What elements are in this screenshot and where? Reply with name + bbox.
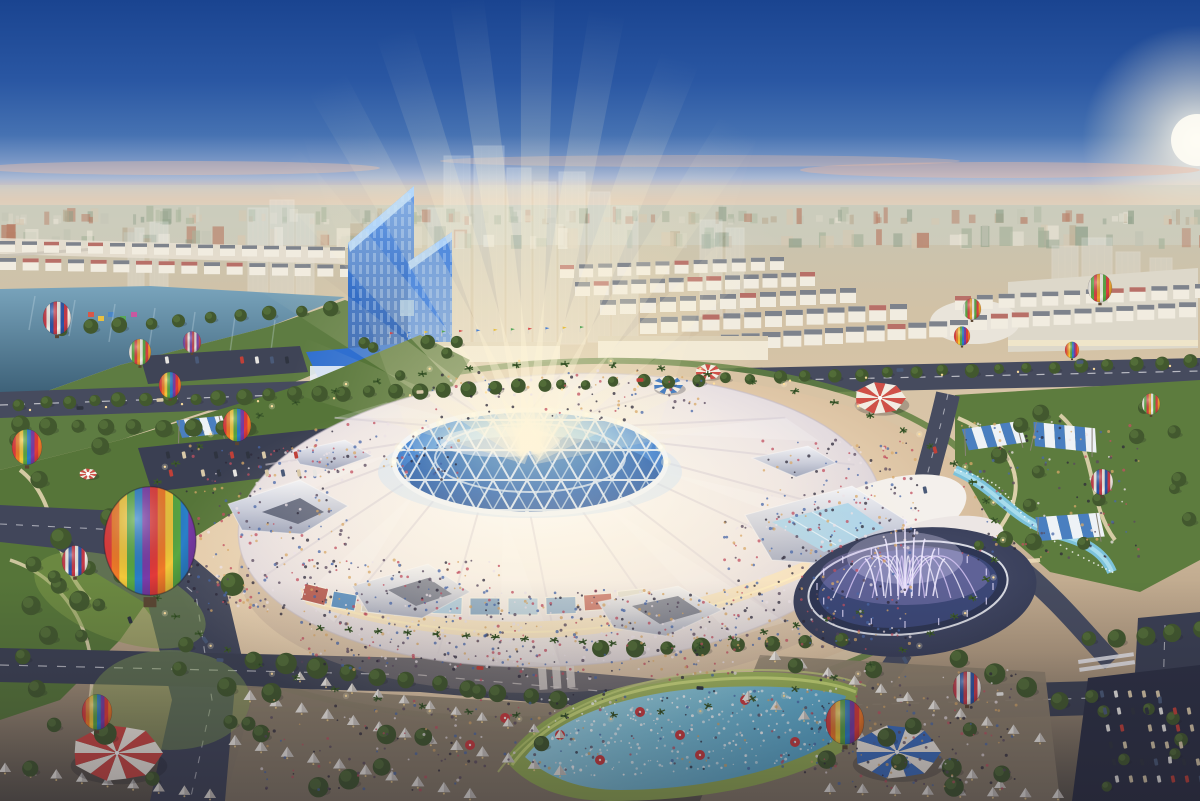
- person-dot: [1074, 505, 1077, 508]
- person-dot: [1033, 436, 1036, 439]
- person-dot: [495, 395, 498, 398]
- streetlight: [345, 383, 347, 385]
- person-dot: [912, 502, 914, 504]
- person-dot: [406, 576, 409, 579]
- tree-highlight: [937, 365, 943, 371]
- person-dot: [270, 453, 272, 455]
- person-dot: [398, 564, 401, 567]
- person-dot: [596, 400, 598, 402]
- person-dot: [776, 518, 778, 520]
- skyline-building: [1128, 211, 1134, 225]
- shophouse-roof: [1137, 305, 1154, 310]
- tree-highlight: [389, 385, 397, 393]
- shophouse-roof: [1173, 285, 1189, 289]
- person-dot: [219, 505, 221, 507]
- person-dot: [1047, 469, 1049, 471]
- person-dot: [973, 422, 976, 425]
- balloon-basket: [73, 577, 77, 580]
- person-dot: [196, 563, 199, 566]
- person-dot: [916, 484, 918, 486]
- person-dot: [225, 462, 227, 464]
- tree-highlight: [489, 382, 497, 390]
- person-dot: [198, 523, 200, 525]
- person-dot: [410, 460, 412, 462]
- person-dot: [222, 513, 225, 516]
- person-dot: [1010, 467, 1012, 469]
- person-dot: [735, 528, 737, 530]
- person-dot: [367, 566, 369, 568]
- person-dot: [962, 552, 964, 554]
- skyline-building: [969, 215, 976, 223]
- person-dot: [999, 431, 1001, 433]
- person-dot: [813, 576, 816, 579]
- person-dot: [983, 470, 986, 473]
- person-dot: [616, 377, 618, 379]
- person-dot: [1059, 420, 1062, 423]
- person-dot: [1003, 506, 1006, 509]
- person-dot: [274, 474, 277, 477]
- person-dot: [672, 407, 674, 409]
- person-dot: [327, 463, 329, 465]
- streetlight: [992, 576, 994, 578]
- tree-highlight: [1172, 473, 1180, 481]
- balloon-basket: [1071, 359, 1073, 361]
- person-dot: [346, 448, 349, 451]
- person-dot: [890, 519, 892, 521]
- skyline-building: [2, 213, 9, 222]
- person-dot: [756, 556, 758, 558]
- palm-crown: [751, 380, 753, 382]
- skyline-building: [1069, 225, 1076, 245]
- person-dot: [669, 388, 672, 391]
- skyline-building: [1076, 214, 1083, 224]
- person-dot: [879, 470, 881, 472]
- shophouse-roof: [890, 304, 907, 309]
- person-dot: [541, 377, 543, 379]
- tree-highlight: [32, 472, 42, 482]
- person-dot: [824, 509, 827, 512]
- tree-highlight: [364, 386, 371, 393]
- shophouse-roof: [159, 261, 175, 265]
- person-dot: [631, 394, 633, 396]
- person-dot: [895, 452, 897, 454]
- streetlight: [333, 397, 335, 399]
- palm-crown: [156, 481, 158, 483]
- person-dot: [1125, 503, 1127, 505]
- person-dot: [901, 527, 904, 530]
- streetlight: [271, 405, 273, 407]
- tree-highlight: [93, 439, 103, 449]
- person-dot: [833, 524, 836, 527]
- streetlight: [941, 374, 943, 376]
- person-dot: [578, 386, 581, 389]
- person-dot: [764, 489, 767, 492]
- person-dot: [683, 399, 686, 402]
- person-dot: [281, 537, 283, 539]
- person-dot: [697, 397, 700, 400]
- person-dot: [423, 454, 425, 456]
- skyline-building: [1020, 217, 1027, 224]
- person-dot: [912, 534, 915, 537]
- waterfront-attraction: [98, 316, 104, 321]
- person-dot: [251, 559, 254, 562]
- person-dot: [326, 491, 329, 494]
- shophouse-roof: [22, 241, 37, 245]
- person-dot: [995, 543, 998, 546]
- palm-crown: [612, 364, 614, 366]
- person-dot: [1135, 545, 1137, 547]
- balloon-basket: [961, 346, 963, 348]
- person-dot: [624, 396, 626, 398]
- person-dot: [1084, 483, 1087, 486]
- person-dot: [725, 536, 728, 539]
- person-dot: [315, 497, 317, 499]
- person-dot: [343, 456, 345, 458]
- person-dot: [833, 569, 836, 572]
- person-dot: [320, 475, 322, 477]
- person-dot: [820, 546, 822, 548]
- person-dot: [318, 538, 320, 540]
- stream-jet: [987, 479, 989, 481]
- person-dot: [696, 384, 699, 387]
- shophouse-roof: [1012, 312, 1029, 317]
- person-dot: [311, 559, 313, 561]
- person-dot: [915, 531, 918, 534]
- person-dot: [214, 522, 216, 524]
- person-dot: [257, 457, 259, 459]
- person-dot: [326, 518, 328, 520]
- person-dot: [332, 560, 335, 563]
- person-dot: [817, 506, 820, 509]
- person-dot: [1100, 431, 1103, 434]
- palm-crown: [869, 415, 871, 417]
- streetlight: [181, 403, 183, 405]
- person-dot: [969, 462, 972, 465]
- skyline-building: [192, 231, 200, 246]
- person-dot: [447, 375, 449, 377]
- person-dot: [987, 533, 990, 536]
- skyline-building: [816, 215, 823, 222]
- person-dot: [421, 427, 423, 429]
- person-dot: [1059, 427, 1062, 430]
- person-dot: [418, 463, 420, 465]
- person-dot: [314, 428, 317, 431]
- skyline-building: [771, 216, 777, 222]
- person-dot: [835, 461, 837, 463]
- person-dot: [325, 465, 327, 467]
- shophouse-roof: [44, 242, 59, 246]
- person-dot: [431, 467, 433, 469]
- person-dot: [1108, 523, 1110, 525]
- skyline-building: [238, 235, 246, 246]
- stream-jet: [1054, 541, 1056, 543]
- person-dot: [404, 475, 406, 477]
- person-dot: [225, 499, 228, 502]
- person-dot: [831, 508, 834, 511]
- tree-highlight: [581, 381, 586, 386]
- person-dot: [855, 569, 858, 572]
- person-dot: [312, 495, 314, 497]
- person-dot: [797, 459, 799, 461]
- stream-jet: [1013, 504, 1015, 506]
- person-dot: [631, 405, 634, 408]
- person-dot: [879, 552, 881, 554]
- palm-crown: [175, 463, 177, 465]
- person-dot: [817, 447, 819, 449]
- person-dot: [724, 521, 726, 523]
- palm-crown: [516, 364, 518, 366]
- waterfront-attraction: [131, 312, 137, 317]
- person-dot: [341, 523, 344, 526]
- person-dot: [1040, 532, 1043, 535]
- person-dot: [790, 550, 793, 553]
- person-dot: [883, 536, 885, 538]
- person-dot: [373, 422, 376, 425]
- person-dot: [776, 466, 779, 469]
- person-dot: [312, 460, 314, 462]
- person-dot: [289, 526, 292, 529]
- person-dot: [485, 404, 488, 407]
- stream-jet: [995, 484, 997, 486]
- skyline-building: [797, 208, 802, 224]
- person-dot: [402, 465, 404, 467]
- person-dot: [992, 459, 995, 462]
- person-dot: [874, 495, 876, 497]
- person-dot: [407, 449, 409, 451]
- skyline-building: [917, 233, 929, 248]
- person-dot: [467, 417, 470, 420]
- person-dot: [766, 497, 768, 499]
- person-dot: [865, 486, 868, 489]
- tree-highlight: [856, 370, 863, 377]
- streetlight: [1002, 539, 1004, 541]
- person-dot: [412, 435, 414, 437]
- person-dot: [384, 435, 387, 438]
- person-dot: [871, 558, 873, 560]
- skyline-building: [874, 211, 878, 224]
- person-dot: [441, 576, 444, 579]
- tree-highlight: [369, 343, 375, 349]
- person-dot: [339, 562, 341, 564]
- person-dot: [986, 521, 988, 523]
- person-dot: [914, 507, 916, 509]
- person-dot: [259, 466, 262, 469]
- person-dot: [1089, 545, 1091, 547]
- person-dot: [299, 476, 301, 478]
- tree-highlight: [263, 389, 270, 396]
- person-dot: [668, 381, 670, 383]
- shophouse-roof: [249, 263, 265, 267]
- person-dot: [681, 376, 683, 378]
- person-dot: [228, 453, 230, 455]
- balloon-basket: [971, 320, 974, 322]
- person-dot: [761, 538, 764, 541]
- tree-highlight: [911, 367, 918, 374]
- person-dot: [240, 535, 243, 538]
- shophouse-roof: [23, 258, 39, 262]
- person-dot: [291, 451, 293, 453]
- person-dot: [328, 452, 330, 454]
- person-dot: [577, 403, 579, 405]
- person-dot: [981, 479, 983, 481]
- person-dot: [375, 435, 377, 437]
- streetlight: [992, 501, 994, 503]
- shophouse-roof: [825, 328, 843, 333]
- person-dot: [564, 380, 567, 383]
- person-dot: [430, 428, 432, 430]
- person-dot: [691, 410, 694, 413]
- shophouse-roof: [804, 329, 822, 334]
- skyline-building: [901, 218, 908, 224]
- person-dot: [191, 450, 193, 452]
- person-dot: [1039, 438, 1041, 440]
- person-dot: [977, 423, 980, 426]
- person-dot: [464, 575, 466, 577]
- person-dot: [317, 567, 319, 569]
- person-dot: [591, 393, 593, 395]
- person-dot: [383, 559, 386, 562]
- person-dot: [470, 560, 472, 562]
- car: [416, 390, 423, 394]
- person-dot: [211, 480, 213, 482]
- person-dot: [879, 555, 881, 557]
- person-dot: [386, 458, 388, 460]
- balloon-basket: [235, 442, 239, 445]
- person-dot: [470, 395, 473, 398]
- tree-highlight: [99, 420, 108, 429]
- skyline-building: [16, 216, 19, 223]
- person-dot: [887, 447, 890, 450]
- person-dot: [894, 544, 897, 547]
- person-dot: [855, 527, 857, 529]
- person-dot: [623, 418, 626, 421]
- person-dot: [590, 409, 592, 411]
- stream-jet: [1017, 508, 1019, 510]
- person-dot: [871, 494, 873, 496]
- tree-highlight: [995, 365, 1001, 371]
- person-dot: [364, 464, 367, 467]
- person-dot: [822, 576, 825, 579]
- person-dot: [793, 523, 795, 525]
- shophouse-roof: [763, 274, 778, 278]
- person-dot: [293, 493, 295, 495]
- stream-jet: [1077, 554, 1079, 556]
- tree-highlight: [191, 395, 197, 401]
- person-dot: [445, 561, 448, 564]
- person-dot: [205, 565, 208, 568]
- person-dot: [353, 451, 356, 454]
- stream-jet: [1024, 516, 1026, 518]
- person-dot: [993, 423, 996, 426]
- person-dot: [447, 456, 449, 458]
- shophouse-roof: [1195, 284, 1200, 288]
- person-dot: [313, 565, 316, 568]
- person-dot: [1044, 463, 1047, 466]
- stream-jet: [1088, 560, 1090, 562]
- stream-jet: [1060, 544, 1062, 546]
- person-dot: [484, 380, 486, 382]
- tree-highlight: [41, 397, 48, 404]
- palm-crown: [259, 415, 261, 417]
- person-dot: [230, 567, 232, 569]
- person-dot: [254, 490, 256, 492]
- tree-highlight: [235, 310, 242, 317]
- person-dot: [325, 453, 328, 456]
- person-dot: [339, 533, 342, 536]
- person-dot: [291, 572, 293, 574]
- person-dot: [1090, 529, 1093, 532]
- stream-jet: [1020, 512, 1022, 514]
- person-dot: [214, 480, 216, 482]
- tree-highlight: [237, 390, 246, 399]
- person-dot: [283, 563, 285, 565]
- person-dot: [723, 536, 726, 539]
- streetlight: [964, 466, 966, 468]
- person-dot: [443, 451, 445, 453]
- person-dot: [339, 539, 341, 541]
- person-dot: [527, 386, 530, 389]
- person-dot: [281, 557, 283, 559]
- person-dot: [892, 476, 895, 479]
- person-dot: [776, 513, 778, 515]
- tree-highlight: [13, 417, 23, 427]
- person-dot: [1067, 556, 1070, 559]
- person-dot: [1070, 431, 1072, 433]
- person-dot: [1104, 555, 1106, 557]
- person-dot: [220, 566, 223, 569]
- tree-highlight: [1156, 358, 1164, 366]
- person-dot: [879, 522, 882, 525]
- skyline-building: [907, 209, 912, 221]
- person-dot: [221, 487, 224, 490]
- person-dot: [457, 477, 459, 479]
- tree-highlight: [829, 370, 836, 377]
- person-dot: [433, 473, 436, 476]
- person-dot: [853, 499, 855, 501]
- tree-highlight: [1130, 358, 1138, 366]
- stream-jet: [1108, 570, 1110, 572]
- person-dot: [488, 383, 490, 385]
- person-dot: [275, 562, 278, 565]
- person-dot: [910, 507, 912, 509]
- person-dot: [903, 477, 906, 480]
- person-dot: [751, 564, 753, 566]
- skyline-building: [146, 206, 153, 222]
- person-dot: [891, 451, 894, 454]
- person-dot: [912, 509, 914, 511]
- person-dot: [334, 469, 336, 471]
- person-dot: [856, 529, 858, 531]
- person-dot: [276, 566, 278, 568]
- person-dot: [1085, 433, 1088, 436]
- palm-crown: [794, 390, 796, 392]
- shophouse-roof: [220, 245, 235, 249]
- tree-highlight: [437, 384, 445, 392]
- person-dot: [396, 457, 398, 459]
- person-dot: [1067, 462, 1069, 464]
- person-dot: [229, 462, 232, 465]
- person-dot: [423, 447, 426, 450]
- car: [76, 406, 83, 410]
- person-dot: [902, 524, 905, 527]
- person-dot: [488, 561, 490, 563]
- person-dot: [885, 517, 887, 519]
- person-dot: [444, 470, 446, 472]
- person-dot: [851, 446, 853, 448]
- person-dot: [840, 485, 842, 487]
- skyline-building: [133, 214, 136, 224]
- person-dot: [340, 529, 343, 532]
